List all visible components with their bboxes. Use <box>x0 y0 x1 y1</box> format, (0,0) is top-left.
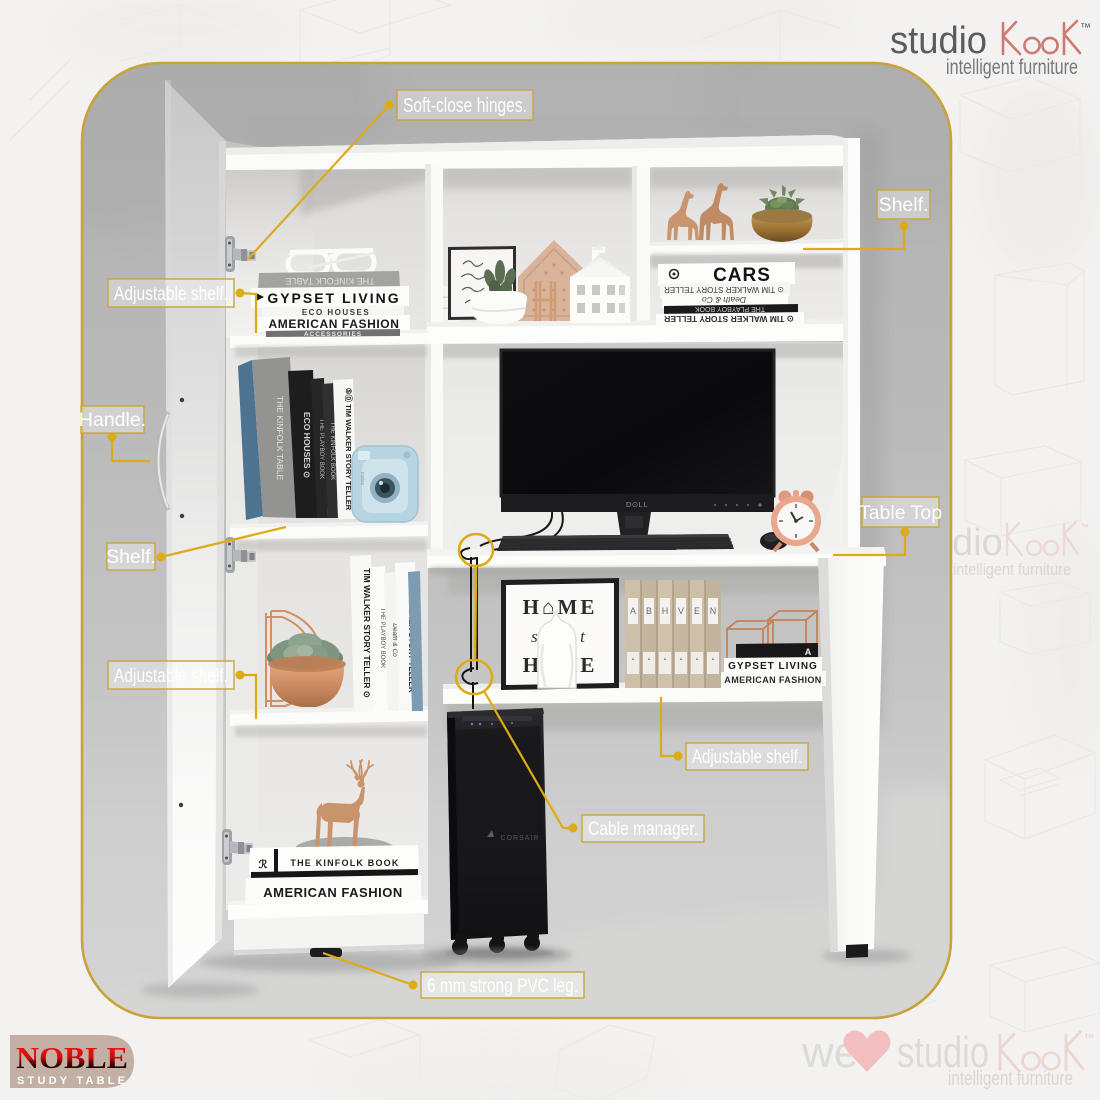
svg-text:N: N <box>710 606 717 616</box>
svg-text:STUDY TABLE: STUDY TABLE <box>17 1075 128 1087</box>
svg-text:6 mm strong PVC leg.: 6 mm strong PVC leg. <box>427 975 578 997</box>
svg-text:Soft-close hinges.: Soft-close hinges. <box>403 94 527 117</box>
svg-text:Shelf.: Shelf. <box>106 546 156 568</box>
svg-text:Adjustable shelf.: Adjustable shelf. <box>114 283 228 305</box>
svg-text:E: E <box>694 606 700 616</box>
svg-text:⊙ TIM WALKER STORY TELLER: ⊙ TIM WALKER STORY TELLER <box>664 285 784 294</box>
svg-text:GYPSET LIVING: GYPSET LIVING <box>267 290 400 306</box>
svg-text:ACCESSORIES: ACCESSORIES <box>304 331 362 338</box>
svg-text:ℛ: ℛ <box>259 859 268 871</box>
svg-text:™: ™ <box>1080 522 1089 532</box>
svg-text:ECO HOUSES ⊙: ECO HOUSES ⊙ <box>302 412 312 478</box>
svg-text:THE KINFOLK TABLE: THE KINFOLK TABLE <box>285 276 374 286</box>
svg-text:THE KINFOLK BOOK: THE KINFOLK BOOK <box>329 422 335 480</box>
svg-text:H⌂ME: H⌂ME <box>523 595 598 619</box>
svg-text:™: ™ <box>1080 22 1091 34</box>
svg-text:Handle.: Handle. <box>79 409 146 431</box>
svg-text:instax: instax <box>359 472 365 486</box>
svg-text:THE PLAYBOY BOOK: THE PLAYBOY BOOK <box>379 608 385 668</box>
svg-text:THE PLAYBOY BOOK: THE PLAYBOY BOOK <box>695 305 765 312</box>
svg-text:A: A <box>805 647 812 657</box>
svg-text:Cable manager.: Cable manager. <box>588 818 698 840</box>
svg-text:AMERICAN FASHION: AMERICAN FASHION <box>269 317 400 331</box>
svg-text:THE KINFOLK BOOK: THE KINFOLK BOOK <box>290 858 399 868</box>
svg-text:H: H <box>662 606 669 616</box>
svg-text:™: ™ <box>1084 1033 1094 1044</box>
svg-text:V: V <box>678 606 684 616</box>
svg-text:D⊙LL: D⊙LL <box>626 500 648 509</box>
svg-text:⊙ TIM WALKER STORY TELLER: ⊙ TIM WALKER STORY TELLER <box>664 314 794 324</box>
svg-text:intelligent furniture: intelligent furniture <box>948 1068 1073 1090</box>
svg-text:B: B <box>646 606 652 616</box>
svg-text:GYPSET LIVING: GYPSET LIVING <box>728 661 818 672</box>
svg-text:Adjustable shelf.: Adjustable shelf. <box>692 746 802 768</box>
svg-text:CORSAIR: CORSAIR <box>501 835 540 842</box>
svg-text:Shelf.: Shelf. <box>879 194 929 216</box>
svg-text:A: A <box>630 606 636 616</box>
svg-text:AMERICAN FASHION: AMERICAN FASHION <box>263 885 402 900</box>
svg-text:TIM WALKER STORY TELLER ⊙: TIM WALKER STORY TELLER ⊙ <box>362 568 372 698</box>
svg-text:dio: dio <box>952 522 1003 564</box>
svg-text:Death & Co: Death & Co <box>702 295 746 305</box>
svg-text:Table Top: Table Top <box>859 502 942 524</box>
svg-text:THE KINFOLK TABLE: THE KINFOLK TABLE <box>275 396 285 481</box>
svg-text:THE PLAYBOY BOOK: THE PLAYBOY BOOK <box>318 419 324 479</box>
svg-text:intelligent furniture: intelligent furniture <box>946 56 1078 79</box>
svg-text:Adjustable shelf.: Adjustable shelf. <box>114 665 228 687</box>
svg-text:AMERICAN FASHION: AMERICAN FASHION <box>724 675 821 685</box>
svg-text:NOBLE: NOBLE <box>16 1040 128 1075</box>
svg-text:ECO HOUSES: ECO HOUSES <box>302 308 370 317</box>
svg-text:intelligent furniture: intelligent furniture <box>953 560 1071 579</box>
